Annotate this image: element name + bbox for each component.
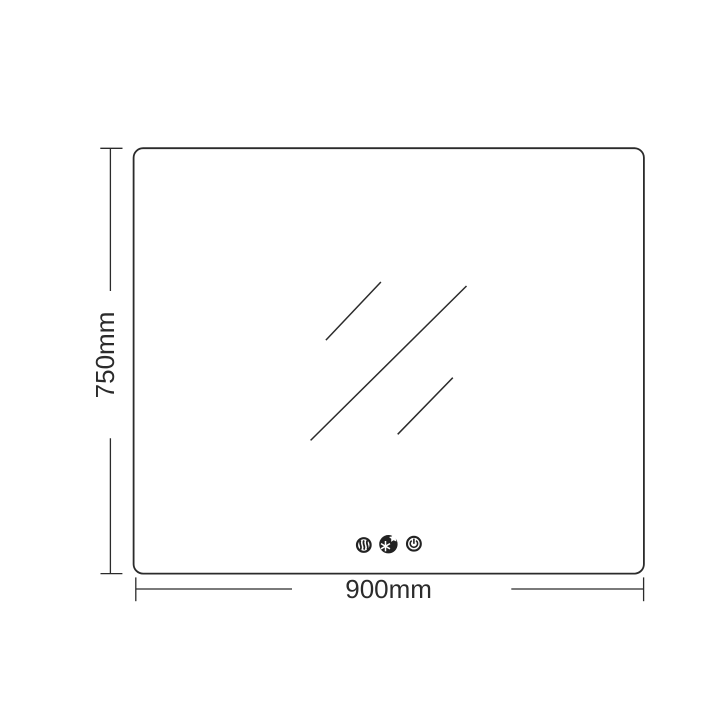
svg-text:750mm: 750mm [90,312,120,399]
svg-text:900mm: 900mm [345,574,432,604]
